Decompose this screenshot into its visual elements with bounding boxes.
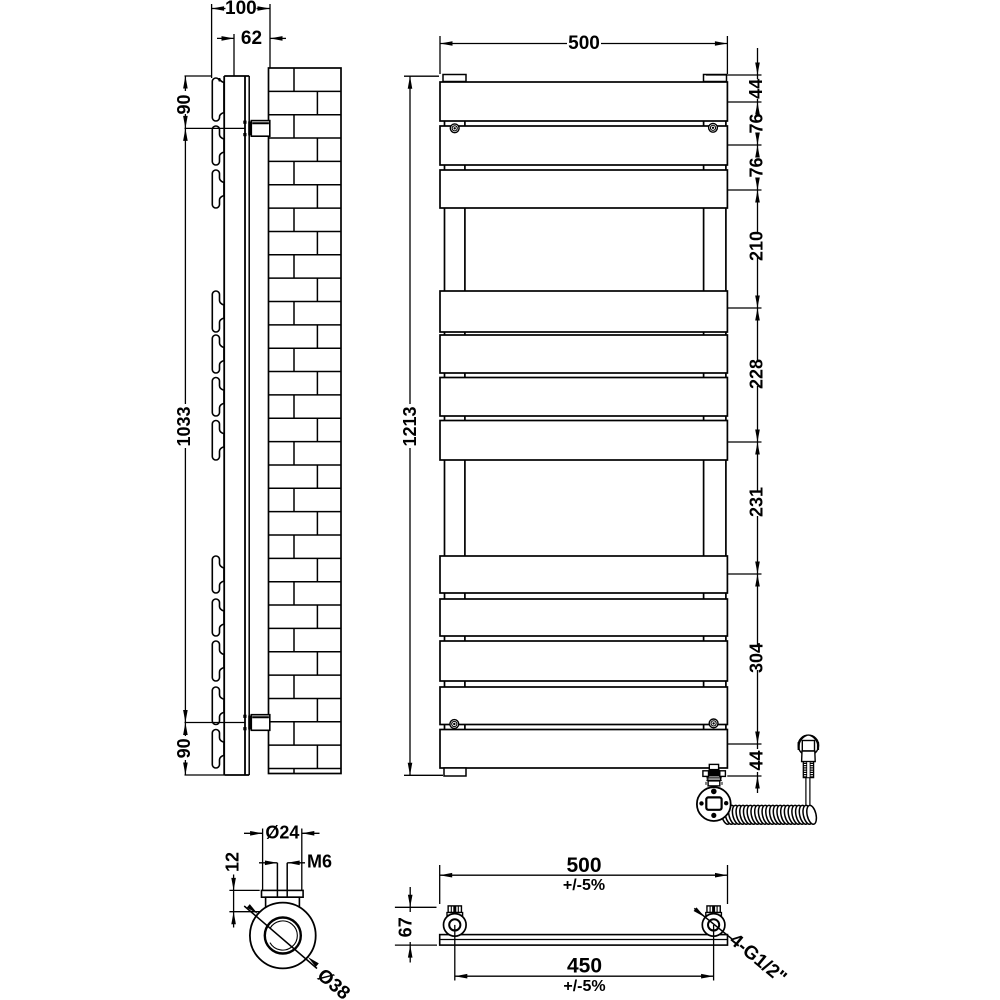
svg-text:M6: M6 [307,852,332,872]
svg-text:44: 44 [746,750,766,770]
svg-text:231: 231 [746,487,766,517]
svg-text:62: 62 [241,28,262,49]
svg-text:500: 500 [568,33,600,54]
svg-text:Ø24: Ø24 [265,823,299,843]
svg-text:90: 90 [174,94,194,114]
svg-text:210: 210 [746,231,766,261]
svg-text:+/-5%: +/-5% [563,978,605,995]
svg-text:+/-5%: +/-5% [563,877,605,894]
svg-text:76: 76 [746,157,766,177]
svg-text:1213: 1213 [400,406,420,446]
svg-text:228: 228 [746,359,766,389]
svg-text:12: 12 [223,852,243,872]
svg-text:44: 44 [746,79,766,99]
svg-text:500: 500 [566,854,601,877]
svg-text:450: 450 [567,955,602,978]
svg-text:76: 76 [746,113,766,133]
svg-text:100: 100 [225,0,257,19]
svg-text:1033: 1033 [174,406,194,446]
svg-text:90: 90 [174,738,194,758]
svg-text:304: 304 [746,643,766,673]
svg-text:67: 67 [396,917,416,937]
